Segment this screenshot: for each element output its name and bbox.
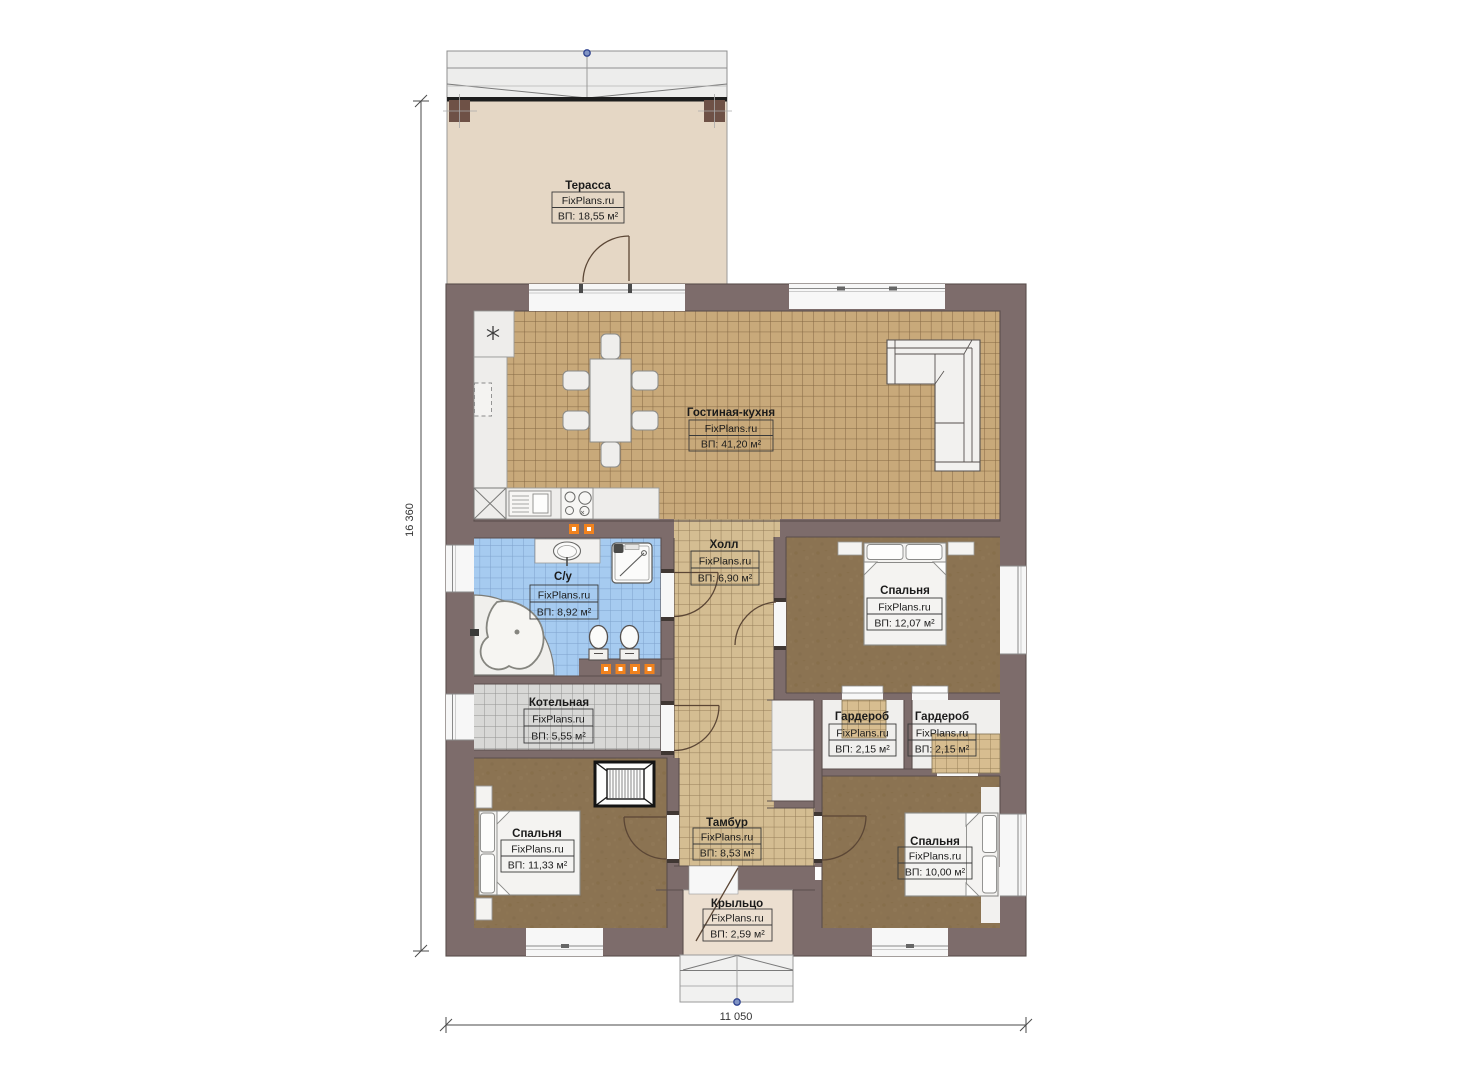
svg-text:Терасса: Терасса [565, 180, 611, 192]
svg-text:ВП: 2,15 м²: ВП: 2,15 м² [835, 744, 890, 756]
svg-text:FixPlans.ru: FixPlans.ru [878, 602, 931, 614]
svg-text:Спальня: Спальня [910, 836, 960, 848]
svg-text:ВП: 6,90 м²: ВП: 6,90 м² [698, 573, 753, 585]
svg-text:ВП: 5,55 м²: ВП: 5,55 м² [531, 731, 586, 743]
svg-text:ВП: 8,53 м²: ВП: 8,53 м² [700, 848, 755, 860]
svg-text:FixPlans.ru: FixPlans.ru [532, 714, 585, 726]
svg-text:FixPlans.ru: FixPlans.ru [711, 913, 764, 925]
svg-text:Тамбур: Тамбур [706, 817, 748, 829]
svg-text:Гардероб: Гардероб [835, 711, 889, 723]
svg-text:ВП: 10,00 м²: ВП: 10,00 м² [905, 867, 966, 879]
svg-text:Гостиная-кухня: Гостиная-кухня [687, 407, 775, 419]
svg-text:FixPlans.ru: FixPlans.ru [909, 851, 962, 863]
svg-text:16 360: 16 360 [404, 503, 416, 537]
svg-text:FixPlans.ru: FixPlans.ru [705, 423, 758, 435]
svg-text:Котельная: Котельная [529, 697, 589, 709]
svg-text:FixPlans.ru: FixPlans.ru [511, 844, 564, 856]
svg-text:FixPlans.ru: FixPlans.ru [699, 556, 752, 568]
svg-text:Гардероб: Гардероб [915, 711, 969, 723]
svg-text:11 050: 11 050 [720, 1011, 753, 1023]
svg-text:ВП: 11,33 м²: ВП: 11,33 м² [508, 860, 568, 872]
svg-text:ВП: 12,07 м²: ВП: 12,07 м² [874, 618, 935, 630]
svg-text:Крыльцо: Крыльцо [711, 898, 763, 910]
svg-text:Спальня: Спальня [880, 585, 930, 597]
svg-text:С/у: С/у [554, 571, 573, 583]
svg-text:ВП: 2,59 м²: ВП: 2,59 м² [710, 929, 765, 941]
svg-text:FixPlans.ru: FixPlans.ru [538, 590, 591, 602]
svg-text:Холл: Холл [710, 539, 739, 551]
svg-text:FixPlans.ru: FixPlans.ru [562, 195, 615, 207]
svg-text:FixPlans.ru: FixPlans.ru [916, 728, 969, 740]
svg-text:ВП: 2,15 м²: ВП: 2,15 м² [915, 744, 970, 756]
svg-text:ВП: 18,55 м²: ВП: 18,55 м² [558, 211, 619, 223]
svg-text:ВП: 41,20 м²: ВП: 41,20 м² [701, 439, 762, 451]
svg-text:FixPlans.ru: FixPlans.ru [701, 832, 754, 844]
svg-text:ВП: 8,92 м²: ВП: 8,92 м² [537, 607, 592, 619]
svg-text:Спальня: Спальня [512, 828, 562, 840]
svg-text:FixPlans.ru: FixPlans.ru [836, 728, 889, 740]
